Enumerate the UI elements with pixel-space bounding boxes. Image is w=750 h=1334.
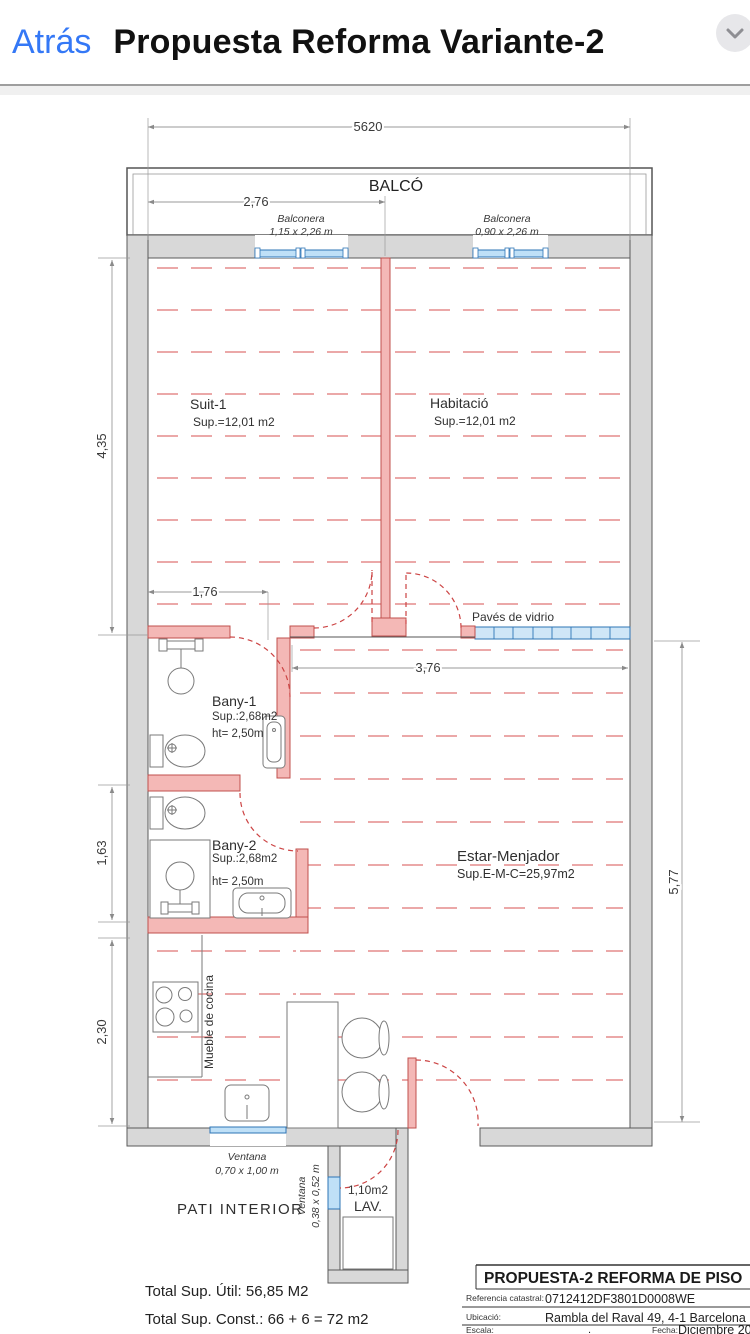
titleblock-date-value: Diciembre 2022 xyxy=(678,1323,750,1334)
suit1-name: Suit-1 xyxy=(190,396,227,412)
dim-bedrooms-depth: 4,35 xyxy=(94,433,109,458)
balconera-right-label: Balconera xyxy=(483,213,530,225)
chair xyxy=(342,1072,389,1112)
ventana-lav-label: Ventana xyxy=(296,1176,308,1215)
mueble-label: Mueble de cocina xyxy=(202,975,216,1069)
totals: Total Sup. Útil: 56,85 M2 Total Sup. Con… xyxy=(145,1283,368,1328)
balconera-left-label: Balconera xyxy=(277,213,324,225)
dim-balcony-door: 2,76 xyxy=(243,194,268,209)
glass-block-wall xyxy=(475,627,630,639)
habitacio-area: Sup.=12,01 m2 xyxy=(434,414,516,428)
shower-bany2 xyxy=(150,840,210,918)
total-const: Total Sup. Const.: 66 + 6 = 72 m2 xyxy=(145,1311,368,1328)
balcony-window-right xyxy=(473,235,548,258)
balconera-left-size: 1,15 x 2,26 m xyxy=(269,226,333,238)
total-util: Total Sup. Útil: 56,85 M2 xyxy=(145,1283,308,1300)
dim-total-width: 5620 xyxy=(354,119,383,134)
bany1-height: ht= 2,50m xyxy=(212,728,263,740)
dim-estar-width: 3,76 xyxy=(415,660,440,675)
floor-plan-viewer[interactable]: 5620 2,76 4,35 1,76 3,76 1,63 2,30 5,77 … xyxy=(0,0,750,1334)
suit1-area: Sup.=12,01 m2 xyxy=(193,415,275,429)
titleblock-ref-value: 0712412DF3801D0008WE xyxy=(545,1292,695,1306)
titleblock-date-label: Fecha: xyxy=(652,1325,678,1334)
titleblock-ref-label: Referencia catastral: xyxy=(466,1293,544,1303)
dim-estar-depth: 5,77 xyxy=(666,869,681,894)
page-title: Propuesta Reforma Variante-2 xyxy=(113,23,604,62)
bany1-name: Bany-1 xyxy=(212,693,257,709)
bany1-area: Sup.:2,68m2 xyxy=(212,711,277,723)
washing-machine xyxy=(343,1217,393,1269)
app-window: Atrás Propuesta Reforma Variante-2 xyxy=(0,0,750,1334)
titleblock-scale-value: . xyxy=(588,1324,591,1334)
habitacio-name: Habitació xyxy=(430,395,489,411)
titleblock-scale-label: Escala: xyxy=(466,1325,494,1334)
chair xyxy=(342,1018,389,1058)
kitchen-sink xyxy=(225,1085,269,1121)
ventana-lav-size: 0,38 x 0,52 m xyxy=(310,1164,322,1228)
bany2-height: ht= 2,50m xyxy=(212,876,263,888)
dining-table xyxy=(287,1002,338,1128)
balconera-right-size: 0,90 x 2,26 m xyxy=(475,226,539,238)
bany2-area: Sup.:2,68m2 xyxy=(212,853,277,865)
room-labels: BALCÓ Balconera 1,15 x 2,26 m Balconera … xyxy=(177,176,575,1228)
dim-kitchen-depth: 2,30 xyxy=(94,1019,109,1044)
title-block: PROPUESTA-2 REFORMA DE PISO Referencia c… xyxy=(462,1265,750,1334)
titleblock-title: PROPUESTA-2 REFORMA DE PISO xyxy=(484,1270,742,1287)
estar-area: Sup.E-M-C=25,97m2 xyxy=(457,867,575,881)
sink-bany1 xyxy=(263,716,285,768)
shower-fixture-bany1 xyxy=(159,639,203,694)
titleblock-location-label: Ubicació: xyxy=(466,1312,501,1322)
bany2-name: Bany-2 xyxy=(212,837,257,853)
balcony-window-left xyxy=(255,235,348,258)
ventana-kitchen-label: Ventana xyxy=(228,1151,267,1163)
paves-label: Pavés de vidrio xyxy=(472,610,554,624)
nav-separator xyxy=(0,84,750,95)
stove xyxy=(153,982,198,1032)
collapse-button[interactable] xyxy=(716,14,750,52)
pati-label: PATI INTERIOR xyxy=(177,1201,303,1218)
toilet-bany2 xyxy=(150,797,205,829)
dim-hall-width: 1,76 xyxy=(192,584,217,599)
balcony-label: BALCÓ xyxy=(369,176,423,195)
toilet-bany1 xyxy=(150,735,205,767)
dim-bany2-depth: 1,63 xyxy=(94,840,109,865)
ventana-kitchen-size: 0,70 x 1,00 m xyxy=(215,1165,279,1177)
back-button[interactable]: Atrás xyxy=(12,23,91,62)
sink-bany2 xyxy=(233,888,291,918)
nav-bar: Atrás Propuesta Reforma Variante-2 xyxy=(0,0,750,84)
lav-name: LAV. xyxy=(354,1198,382,1214)
kitchen-window xyxy=(210,1127,286,1146)
chevron-down-icon xyxy=(723,21,747,45)
lav-area: 1,10m2 xyxy=(348,1183,388,1197)
lav-window xyxy=(328,1177,340,1209)
estar-name: Estar-Menjador xyxy=(457,848,560,865)
